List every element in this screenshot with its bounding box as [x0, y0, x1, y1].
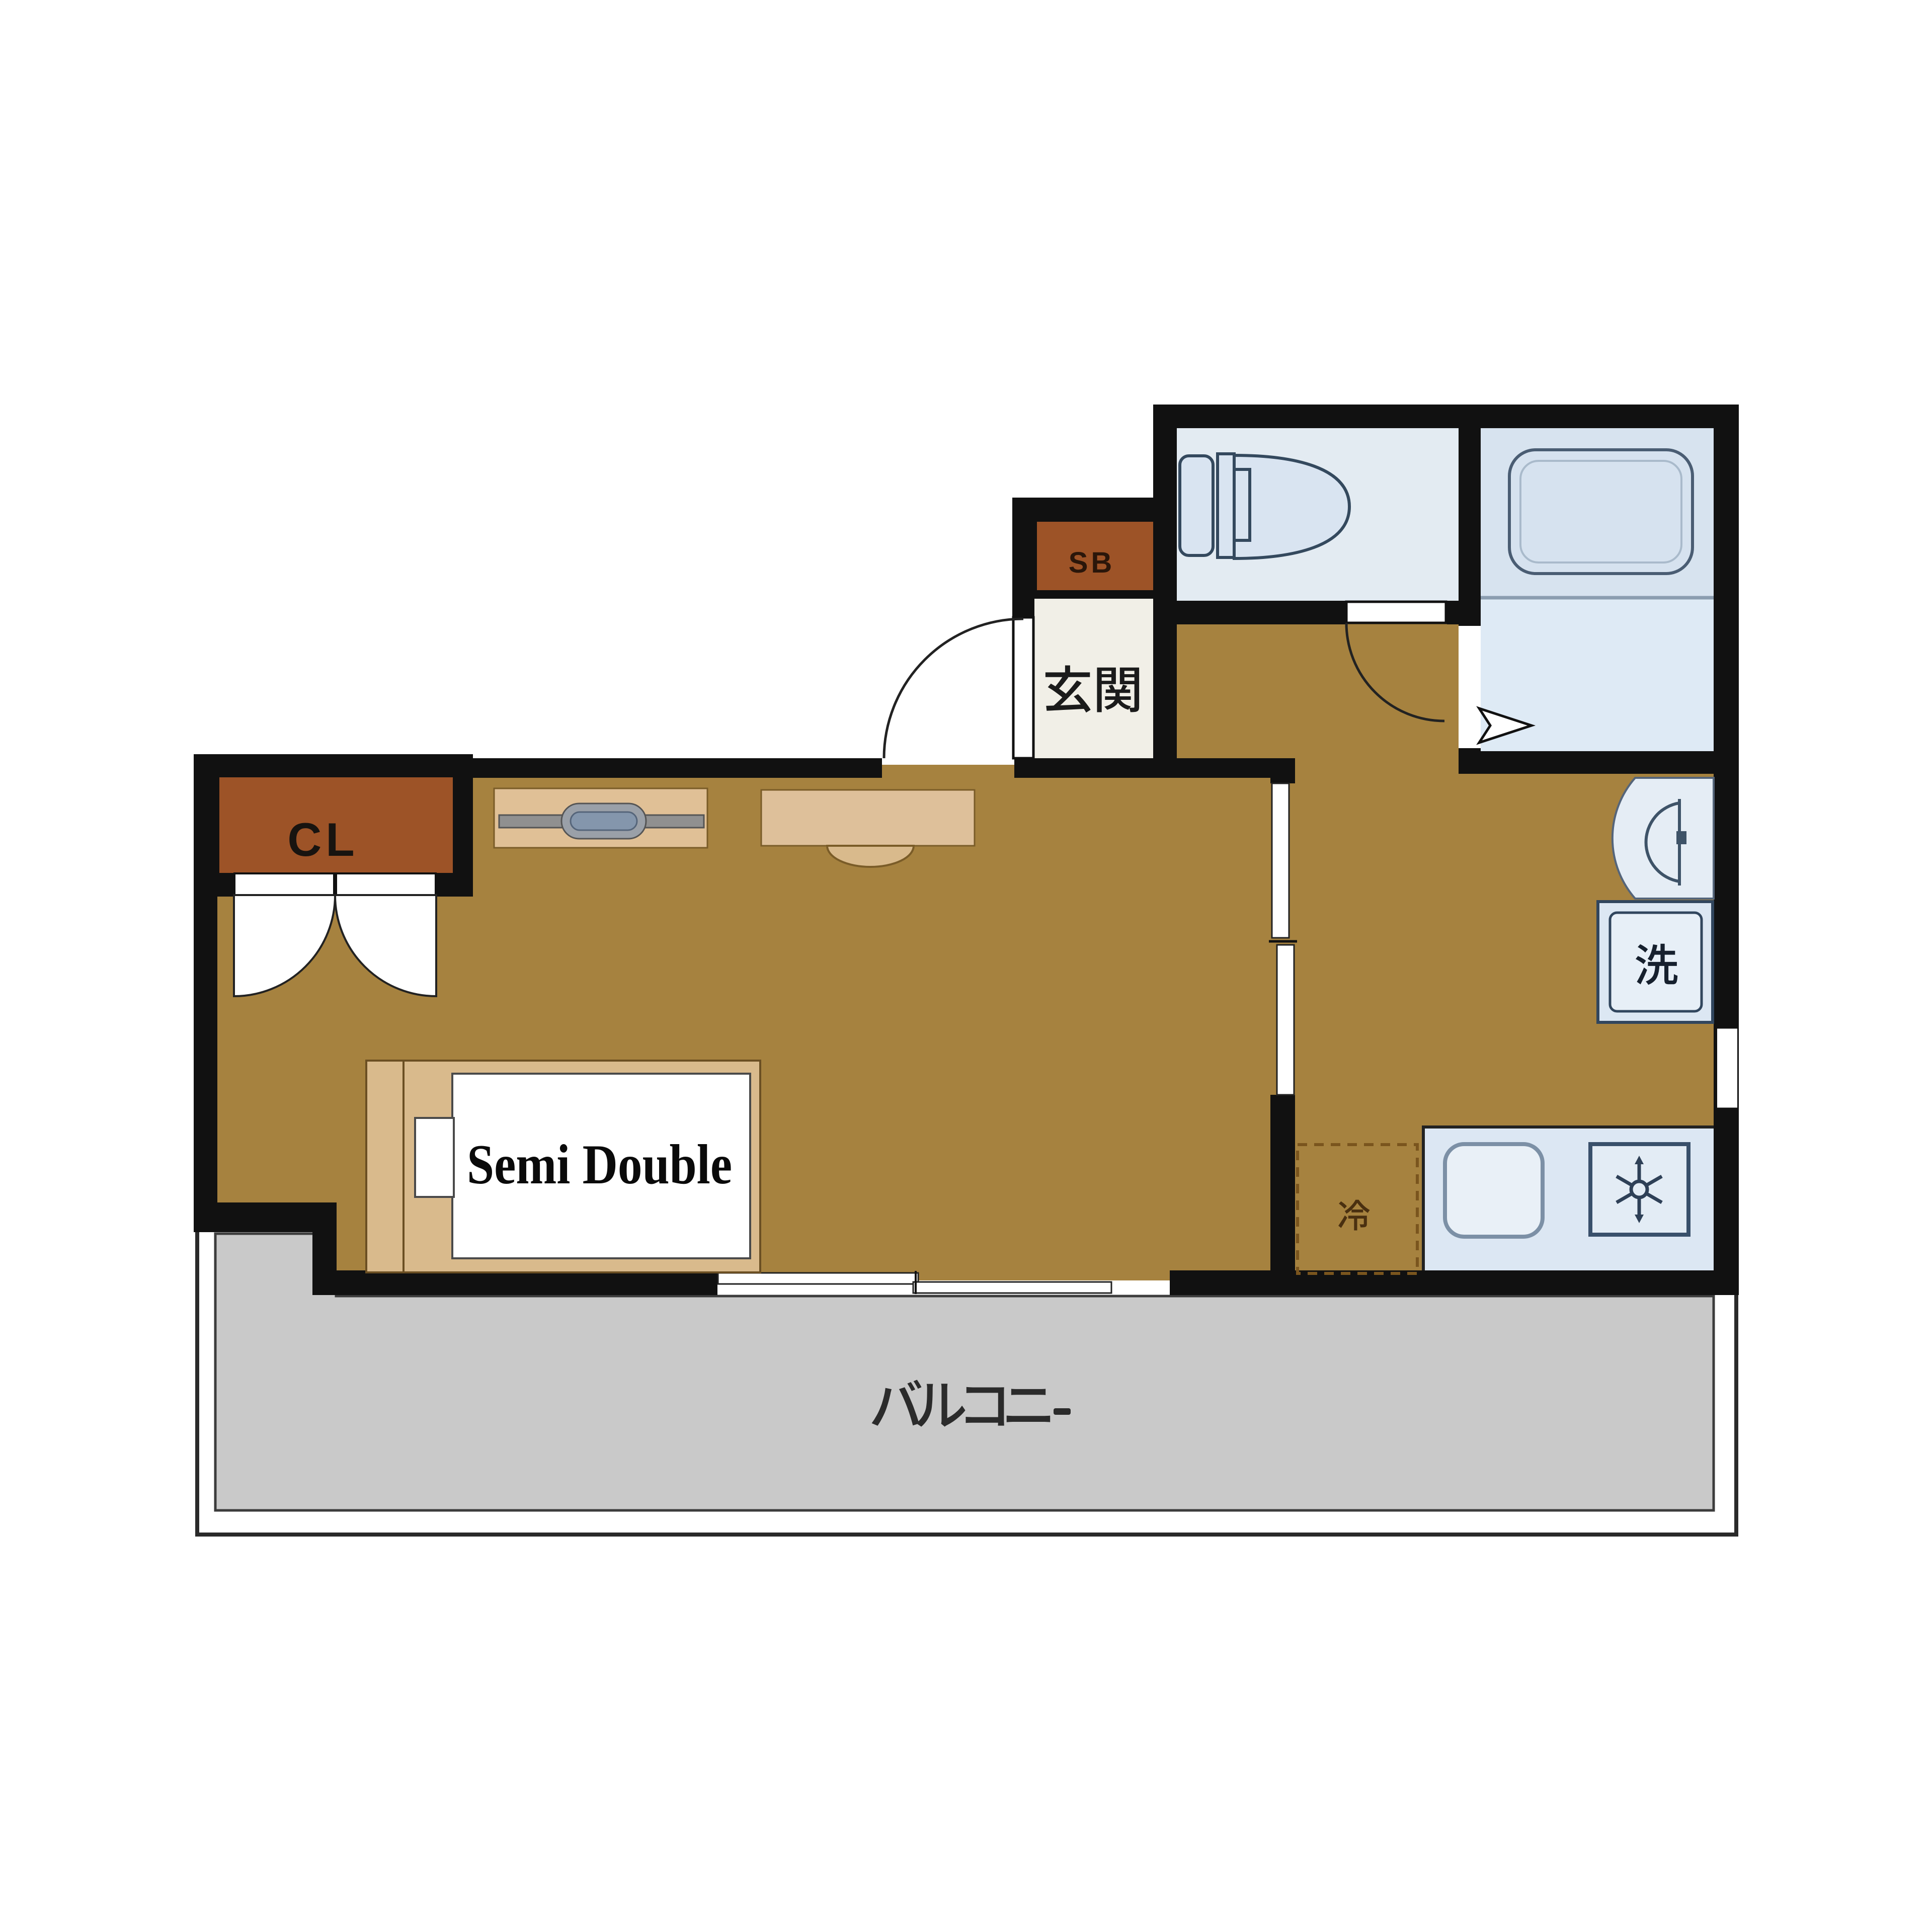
svg-text:CL: CL: [287, 813, 358, 866]
svg-text:Semi Double: Semi Double: [467, 1134, 732, 1196]
svg-text:SB: SB: [1069, 546, 1115, 579]
